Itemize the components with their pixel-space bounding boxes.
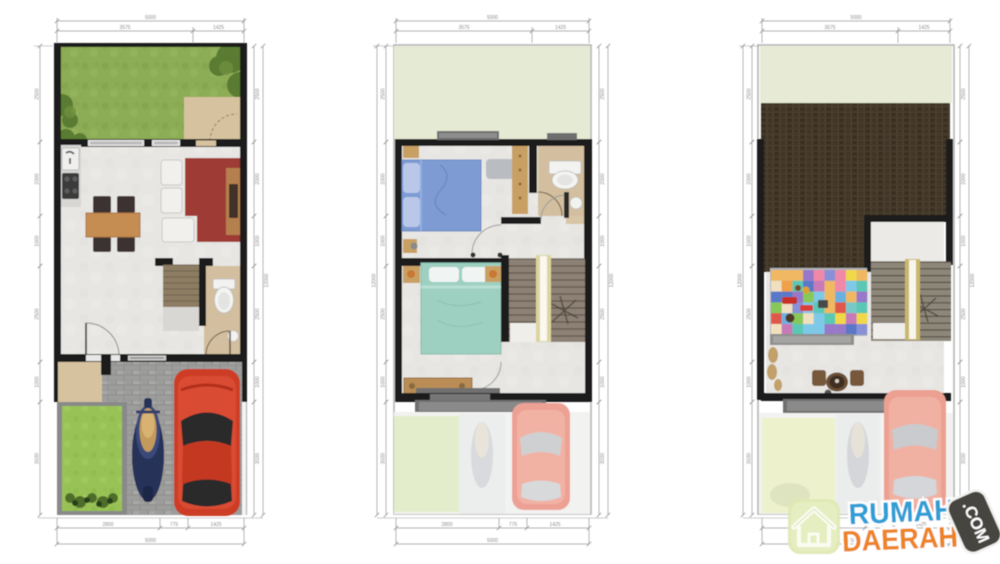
svg-text:1000: 1000 xyxy=(747,376,753,387)
svg-text:5000: 5000 xyxy=(487,15,498,21)
svg-text:2500: 2500 xyxy=(381,308,387,319)
svg-text:1000: 1000 xyxy=(255,376,261,387)
svg-text:2800: 2800 xyxy=(102,522,113,528)
svg-text:5000: 5000 xyxy=(145,538,156,544)
svg-text:5000: 5000 xyxy=(850,15,861,21)
svg-text:12000: 12000 xyxy=(970,273,976,287)
svg-text:1425: 1425 xyxy=(918,25,929,31)
svg-text:1000: 1000 xyxy=(35,376,41,387)
svg-text:3030: 3030 xyxy=(600,453,606,464)
svg-text:2500: 2500 xyxy=(255,308,261,319)
svg-text:1000: 1000 xyxy=(961,376,967,387)
svg-text:2500: 2500 xyxy=(600,308,606,319)
svg-text:3030: 3030 xyxy=(381,453,387,464)
svg-text:3575: 3575 xyxy=(458,25,469,31)
svg-text:2500: 2500 xyxy=(747,308,753,319)
svg-text:1000: 1000 xyxy=(747,235,753,246)
svg-text:12000: 12000 xyxy=(738,273,744,287)
svg-text:5000: 5000 xyxy=(487,538,498,544)
svg-text:2500: 2500 xyxy=(747,88,753,99)
svg-text:1000: 1000 xyxy=(381,376,387,387)
svg-text:3030: 3030 xyxy=(35,453,41,464)
svg-text:1000: 1000 xyxy=(961,235,967,246)
svg-text:775: 775 xyxy=(509,522,518,528)
svg-text:5000: 5000 xyxy=(145,15,156,21)
svg-text:DAERAH: DAERAH xyxy=(841,521,958,558)
svg-text:2500: 2500 xyxy=(961,88,967,99)
svg-text:1425: 1425 xyxy=(555,25,566,31)
svg-text:1425: 1425 xyxy=(210,522,221,528)
svg-text:2000: 2000 xyxy=(747,173,753,184)
svg-text:2000: 2000 xyxy=(35,173,41,184)
svg-text:3030: 3030 xyxy=(747,453,753,464)
svg-text:2500: 2500 xyxy=(600,88,606,99)
svg-text:1000: 1000 xyxy=(600,235,606,246)
svg-text:3575: 3575 xyxy=(824,25,835,31)
svg-text:2000: 2000 xyxy=(961,173,967,184)
svg-text:3030: 3030 xyxy=(255,453,261,464)
svg-text:2800: 2800 xyxy=(441,522,452,528)
svg-text:12000: 12000 xyxy=(609,273,615,287)
svg-text:3575: 3575 xyxy=(119,25,130,31)
svg-text:2500: 2500 xyxy=(961,308,967,319)
svg-text:1000: 1000 xyxy=(255,235,261,246)
svg-text:2000: 2000 xyxy=(255,173,261,184)
svg-text:2000: 2000 xyxy=(600,173,606,184)
svg-text:2500: 2500 xyxy=(255,88,261,99)
svg-text:2000: 2000 xyxy=(381,173,387,184)
svg-text:1000: 1000 xyxy=(35,235,41,246)
svg-text:3030: 3030 xyxy=(961,453,967,464)
svg-text:1425: 1425 xyxy=(213,25,224,31)
svg-text:1000: 1000 xyxy=(381,235,387,246)
svg-text:1000: 1000 xyxy=(600,376,606,387)
svg-text:12000: 12000 xyxy=(264,273,270,287)
svg-text:1425: 1425 xyxy=(549,522,560,528)
svg-text:12000: 12000 xyxy=(372,273,378,287)
svg-text:775: 775 xyxy=(170,522,179,528)
svg-text:2500: 2500 xyxy=(35,308,41,319)
svg-text:2500: 2500 xyxy=(35,88,41,99)
svg-text:2500: 2500 xyxy=(381,88,387,99)
